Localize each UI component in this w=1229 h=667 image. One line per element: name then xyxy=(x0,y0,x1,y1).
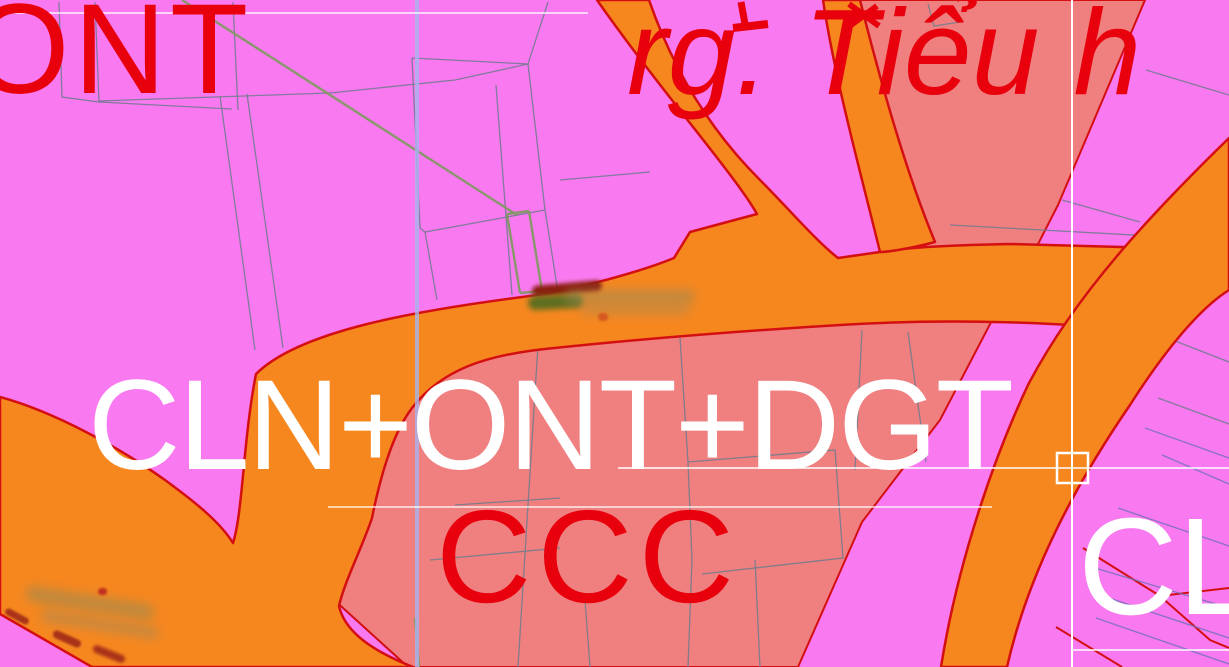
zone-label-ccc: CCC xyxy=(436,491,740,623)
zone-label-ont: ONT xyxy=(0,0,252,114)
zone-label-mixed: CLN+ONT+DGT xyxy=(88,362,1012,490)
road-annotation-smudge xyxy=(520,275,705,323)
zone-label-school: rg. Tiểu h xyxy=(627,0,1141,113)
zone-label-cl: CL xyxy=(1078,498,1229,636)
map-viewport[interactable]: ONT rg. Tiểu h CLN+ONT+DGT CCC CL xyxy=(0,0,1229,667)
corner-annotation-smudge xyxy=(0,580,185,667)
